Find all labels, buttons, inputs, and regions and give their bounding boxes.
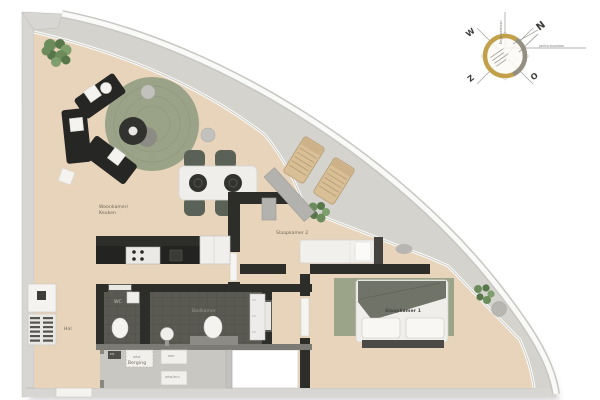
pouf <box>492 302 507 317</box>
sink <box>170 250 182 261</box>
side-table2 <box>396 244 413 254</box>
building-recess <box>232 350 298 388</box>
headboard2 <box>374 237 383 264</box>
wall-storage-right <box>226 350 232 388</box>
entrance-door <box>56 388 92 397</box>
basin <box>161 328 174 341</box>
pillow1b <box>406 318 444 338</box>
headboard1 <box>362 340 444 348</box>
unit-bottom <box>161 371 187 385</box>
unit-right <box>161 350 187 364</box>
unit-mid <box>126 350 153 367</box>
cv-unit <box>108 351 121 359</box>
toilet-bath <box>204 316 222 338</box>
pillow2 <box>355 242 371 261</box>
floor-plan-drawing <box>0 0 600 400</box>
stove <box>126 247 160 264</box>
meter-cupboard <box>28 284 56 345</box>
floor-plan: Woonkamer/ Keuken Slaapkamer 2 Slaapkame… <box>0 0 600 400</box>
compass-rose <box>477 12 586 84</box>
pillow1a <box>362 318 400 338</box>
wc-sink <box>127 292 139 303</box>
shower <box>250 294 265 340</box>
tall-cabinet <box>200 236 230 264</box>
toilet-wc <box>112 318 128 338</box>
